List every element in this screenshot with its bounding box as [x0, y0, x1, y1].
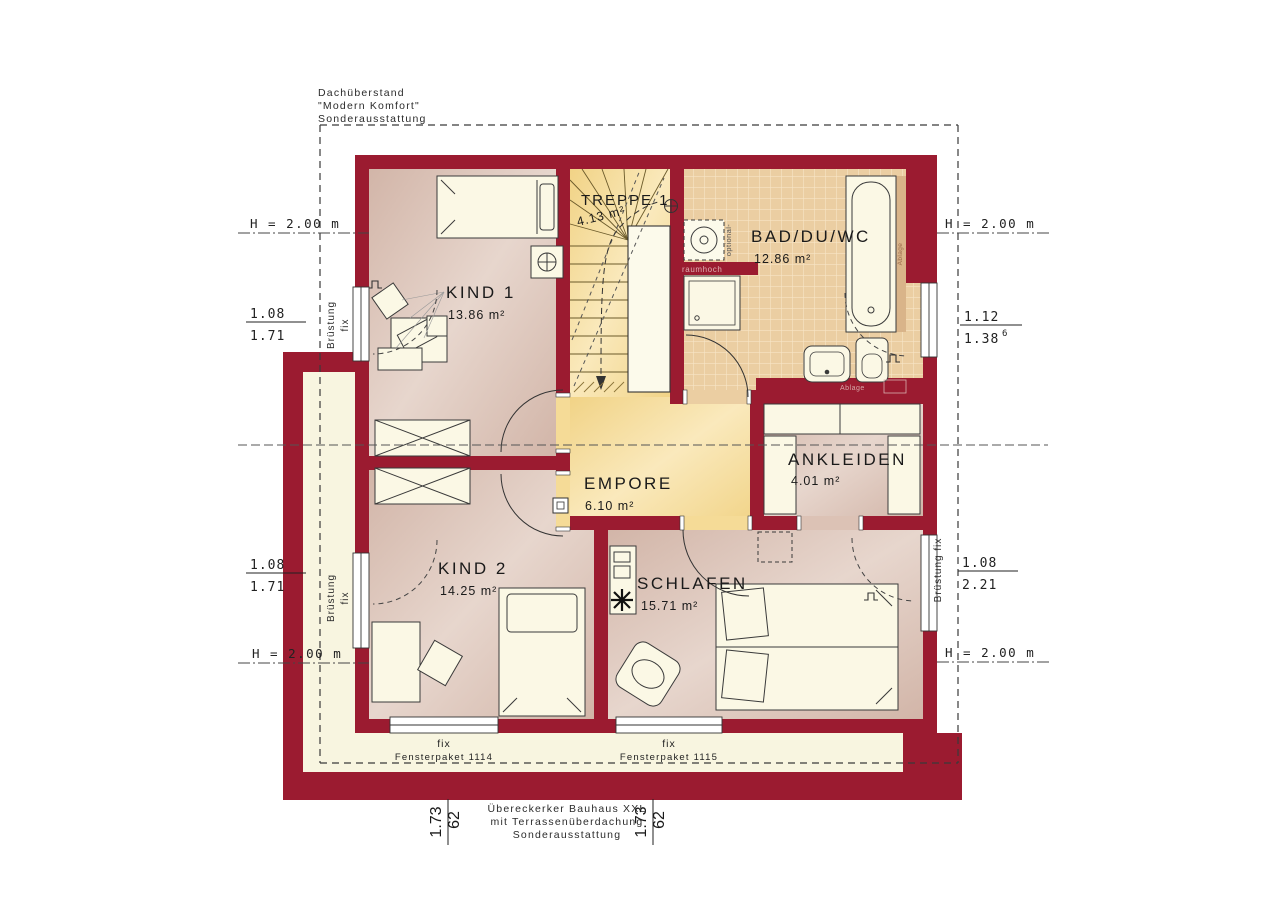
fensterpaket-1114: Fensterpaket 1114 — [395, 752, 493, 763]
terrace-note-line1: Übereckerker Bauhaus XXL — [488, 803, 647, 815]
schlafen-double-bed — [716, 584, 898, 710]
fix-label-2: fix — [662, 738, 676, 750]
bad-area: 12.86 m² — [754, 252, 811, 266]
bathtub — [846, 176, 896, 332]
window-left-bottom — [353, 553, 369, 648]
plant-icon — [611, 589, 633, 611]
roof-note-line1: Dachüberstand — [318, 87, 405, 99]
roof-note-line2: "Modern Komfort" — [318, 100, 420, 112]
eave-right-b: 62 — [651, 811, 668, 829]
terrace-note-line3: Sonderausstattung — [513, 829, 622, 841]
ankleiden-label: ANKLEIDEN — [788, 450, 907, 469]
height-top-right: H = 2.00 m — [945, 216, 1035, 231]
wall-tub-niche — [906, 169, 923, 283]
window-right-top — [921, 283, 937, 357]
kind1-wardrobe — [375, 420, 470, 456]
bruestung-right-bottom: Brüstung fix — [933, 538, 944, 603]
height-top-left: H = 2.00 m — [250, 216, 340, 231]
chimney — [553, 498, 568, 513]
kind1-shelf — [378, 348, 422, 370]
window-bottom-left — [390, 717, 498, 733]
bruestung-left-bottom-1: Brüstung — [326, 574, 337, 622]
terrace-floor-left — [303, 372, 355, 772]
fix-label-1: fix — [437, 738, 451, 750]
wall-north — [355, 155, 937, 169]
ankleiden-area: 4.01 m² — [791, 474, 840, 488]
terrace-corner-block — [903, 733, 962, 772]
bad-door-opening — [686, 390, 748, 404]
dim-right-top-height: 1.38 — [964, 332, 999, 347]
schlafen-area: 15.71 m² — [641, 599, 698, 613]
eave-left-b: 62 — [446, 811, 463, 829]
dim-left-bottom-width: 1.08 — [250, 558, 285, 573]
stair-void — [628, 226, 670, 392]
wc — [856, 338, 888, 382]
dim-left-bottom-height: 1.71 — [250, 580, 285, 595]
washing-machine-optional — [684, 220, 724, 260]
bruestung-left-bottom-2: fix — [340, 592, 351, 605]
terrace-note-line2: mit Terrassenüberdachung — [491, 816, 644, 828]
kind1-door-opening — [556, 396, 570, 450]
wall-empore-ankleiden — [750, 404, 764, 530]
schlafen-door-opening — [683, 516, 749, 530]
floor-plan-page: Dachüberstand "Modern Komfort" Sonderaus… — [0, 0, 1280, 906]
kind2-desk — [372, 622, 420, 702]
eave-left-a: 1.73 — [428, 806, 445, 837]
dim-left-top-width: 1.08 — [250, 307, 285, 322]
fensterpaket-1115: Fensterpaket 1115 — [620, 752, 718, 763]
optional-label: optional- — [724, 224, 733, 256]
ankleiden-passage-opening — [800, 516, 860, 530]
bad-label: BAD/DU/WC — [751, 227, 871, 246]
wall-east — [923, 155, 937, 733]
terrace-wall-bottom — [283, 772, 962, 800]
floor-plan-drawing: Dachüberstand "Modern Komfort" Sonderaus… — [0, 0, 1280, 906]
window-left-top — [353, 287, 369, 361]
ankleiden-wardrobe-right — [888, 436, 920, 514]
height-bottom-right: H = 2.00 m — [945, 645, 1035, 660]
empore-area: 6.10 m² — [585, 499, 634, 513]
dim-right-top-width: 1.12 — [964, 310, 999, 325]
kind2-wardrobe — [375, 468, 470, 504]
dim-right-top-sup: 6 — [1002, 329, 1007, 339]
terrace-wall-left — [283, 352, 303, 800]
schlafen-label: SCHLAFEN — [637, 574, 748, 593]
dim-right-bottom-width: 1.08 — [962, 556, 997, 571]
kind2-area: 14.25 m² — [440, 584, 497, 598]
ablage-tub-label: Ablage — [897, 243, 904, 266]
terrace-floor-bottom — [303, 733, 903, 772]
empore-label: EMPORE — [584, 474, 673, 493]
shower — [684, 276, 740, 330]
roof-note-line3: Sonderausstattung — [318, 113, 427, 125]
kind1-area: 13.86 m² — [448, 308, 505, 322]
kind2-label: KIND 2 — [438, 559, 508, 578]
window-bottom-right — [616, 717, 722, 733]
dim-left-top-height: 1.71 — [250, 329, 285, 344]
bruestung-left-top-1: Brüstung — [326, 301, 337, 349]
treppe-label: TREPPE 1 — [581, 192, 670, 209]
ankleiden-wardrobe-top — [764, 404, 920, 434]
height-bottom-left: H = 2.00 m — [252, 646, 342, 661]
kind1-label: KIND 1 — [446, 283, 516, 302]
raumhoch-label: raumhoch — [682, 265, 722, 274]
wall-kind2-schlafen — [594, 530, 608, 719]
bruestung-left-top-2: fix — [340, 319, 351, 332]
washbasin — [804, 346, 850, 382]
terrace-wall-top-stub — [283, 352, 355, 372]
ablage-wc-label: Ablage — [840, 385, 865, 392]
dim-right-bottom-height: 2.21 — [962, 578, 997, 593]
eave-right-a: 1.73 — [633, 806, 650, 837]
